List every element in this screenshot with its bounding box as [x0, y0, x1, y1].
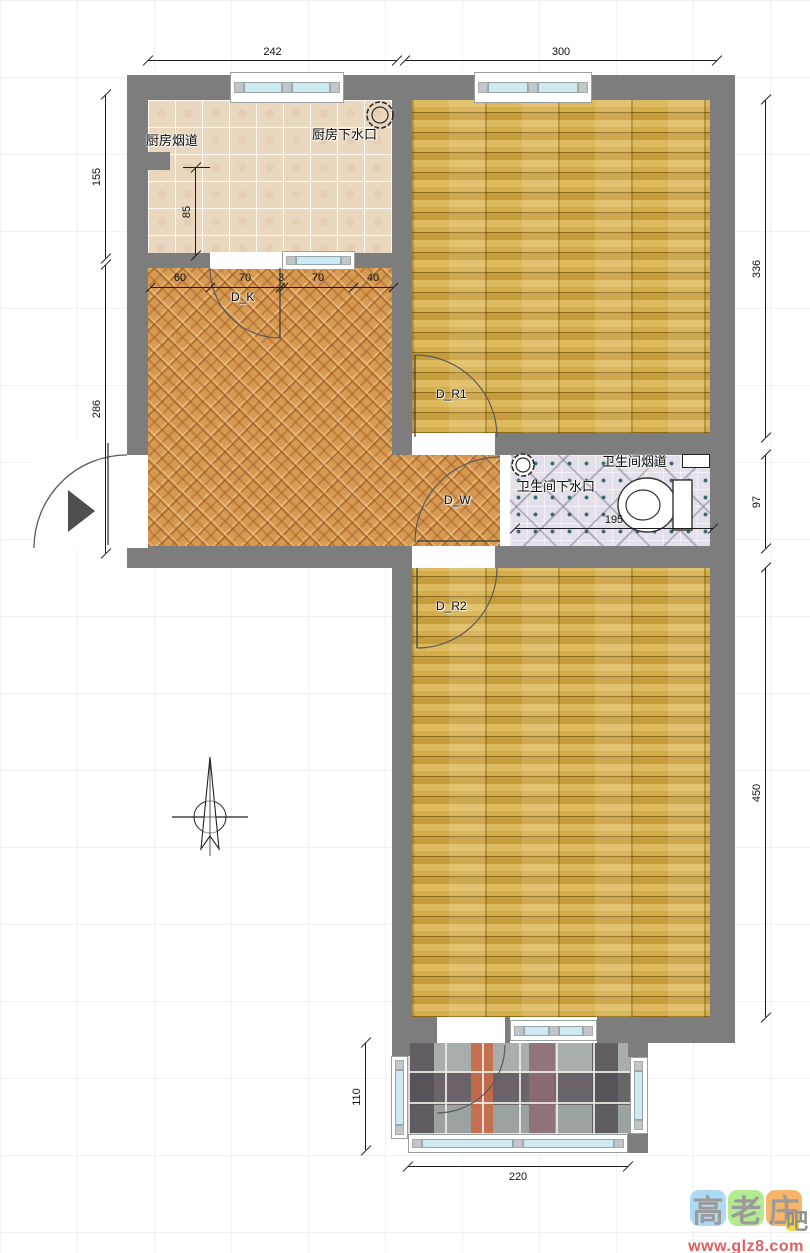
kitchen-drain-label: 厨房下水口	[312, 124, 377, 143]
bedroom2-floor	[412, 568, 710, 1017]
window-mullion	[282, 82, 292, 93]
window-pane	[538, 82, 578, 93]
window-pane	[292, 82, 330, 93]
bedroom2-balcony-window	[510, 1020, 597, 1041]
window-mullion	[341, 256, 351, 265]
door-label-kitchen: D_K	[231, 290, 254, 304]
door-label-wc: D_W	[444, 493, 471, 507]
bath-flue-box	[682, 454, 710, 468]
seg-dim-5: 40	[367, 272, 379, 284]
door-label-room1: D_R1	[436, 387, 467, 401]
dim-left-kitchen: 155	[105, 95, 106, 258]
window-pane	[296, 256, 341, 265]
balcony-post-top-left	[392, 1043, 410, 1056]
window-pane	[488, 82, 528, 93]
window-mullion	[578, 82, 588, 93]
kitchen-flue-label: 厨房烟道	[146, 130, 198, 149]
window-mullion	[614, 1139, 624, 1148]
window-mullion	[286, 256, 296, 265]
wall-top	[127, 75, 735, 100]
dim-living-segments: 60 70 3 70 40	[150, 287, 393, 288]
balcony-right-window	[630, 1057, 648, 1134]
wall-band-right	[495, 546, 710, 568]
watermark: 高 老 庄 吧 www.glz8.com	[682, 1190, 810, 1253]
wall-band-left	[127, 546, 412, 568]
window-pane	[523, 1139, 614, 1148]
watermark-tile-2: 老	[728, 1190, 764, 1226]
seg-dim-3: 3	[278, 272, 284, 284]
dim-top-room1: 300	[405, 60, 717, 61]
window-mullion	[513, 1139, 523, 1148]
balcony-left-window	[391, 1056, 408, 1139]
kitchen-door-opening	[210, 252, 282, 269]
seg-dim-4: 70	[312, 272, 324, 284]
wall-bottom-right	[597, 1017, 710, 1043]
dim-bath-width: 195	[515, 528, 713, 529]
wall-bottom-left	[392, 1017, 437, 1043]
entry-door-opening	[127, 455, 148, 548]
bath-drain-label: 卫生间下水口	[517, 476, 595, 495]
window-pane	[422, 1139, 513, 1148]
window-mullion	[549, 1026, 559, 1036]
dim-right-room2: 450	[765, 568, 766, 1017]
wall-kitchen-divider-right	[355, 253, 392, 268]
window-mullion	[478, 82, 488, 93]
watermark-suffix: 吧	[786, 1204, 808, 1236]
bedroom2-door-opening	[412, 546, 495, 568]
wall-kitchen-divider-left	[148, 253, 210, 268]
balcony-bottom-window	[408, 1134, 628, 1153]
wall-mid-vertical	[392, 100, 412, 455]
dim-right-room1: 336	[765, 100, 766, 437]
bedroom1-floor	[412, 100, 710, 433]
window-mullion	[514, 1026, 524, 1036]
dim-balcony-width: 220	[408, 1166, 628, 1167]
entry-outside-area	[32, 440, 127, 550]
dim-top-kitchen: 242	[148, 60, 397, 61]
door-label-room2: D_R2	[436, 599, 467, 613]
window-pane	[395, 1070, 404, 1125]
watermark-tile-1: 高	[690, 1190, 726, 1226]
window-mullion	[395, 1060, 404, 1070]
wall-bedroom2-left	[392, 568, 412, 1017]
dim-balcony-height: 110	[365, 1043, 366, 1150]
kitchen-floor	[148, 100, 392, 253]
watermark-char-2: 老	[731, 1186, 762, 1231]
watermark-char-1: 高	[693, 1186, 724, 1231]
bath-flue-label: 卫生间烟道	[602, 451, 667, 470]
watermark-url: www.glz8.com	[682, 1238, 810, 1253]
dim-left-living: 286	[105, 265, 106, 553]
window-mullion	[412, 1139, 422, 1148]
kitchen-flue-block	[148, 152, 170, 170]
floor-plan-canvas: 厨房烟道 厨房下水口 卫生间烟道 卫生间下水口 D_K D_R1 D_W D_R…	[0, 0, 810, 1253]
dim-kitchen-inner: 85	[195, 168, 196, 255]
balcony-door-opening	[437, 1017, 505, 1043]
window-pane	[559, 1026, 584, 1036]
window-pane	[524, 1026, 549, 1036]
bedroom1-door-opening	[412, 433, 495, 455]
window-mullion	[395, 1125, 404, 1135]
seg-dim-2: 70	[239, 272, 251, 284]
window-pane	[244, 82, 282, 93]
window-mullion	[330, 82, 340, 93]
window-mullion	[634, 1061, 643, 1071]
window-mullion	[634, 1120, 643, 1130]
window-mullion	[528, 82, 538, 93]
bedroom1-window	[474, 72, 592, 103]
balcony-post-bottom-right	[628, 1133, 648, 1153]
kitchen-pass-window	[282, 251, 355, 270]
dim-right-bath: 97	[765, 455, 766, 548]
balcony-floor	[408, 1043, 630, 1135]
kitchen-window	[230, 72, 344, 103]
wall-left	[127, 100, 148, 455]
window-mullion	[234, 82, 244, 93]
balcony-post-top-right	[628, 1043, 648, 1057]
seg-dim-1: 60	[174, 272, 186, 284]
north-arrow-icon	[172, 757, 248, 856]
wall-right	[710, 75, 735, 1043]
window-pane	[634, 1071, 643, 1120]
window-mullion	[583, 1026, 593, 1036]
